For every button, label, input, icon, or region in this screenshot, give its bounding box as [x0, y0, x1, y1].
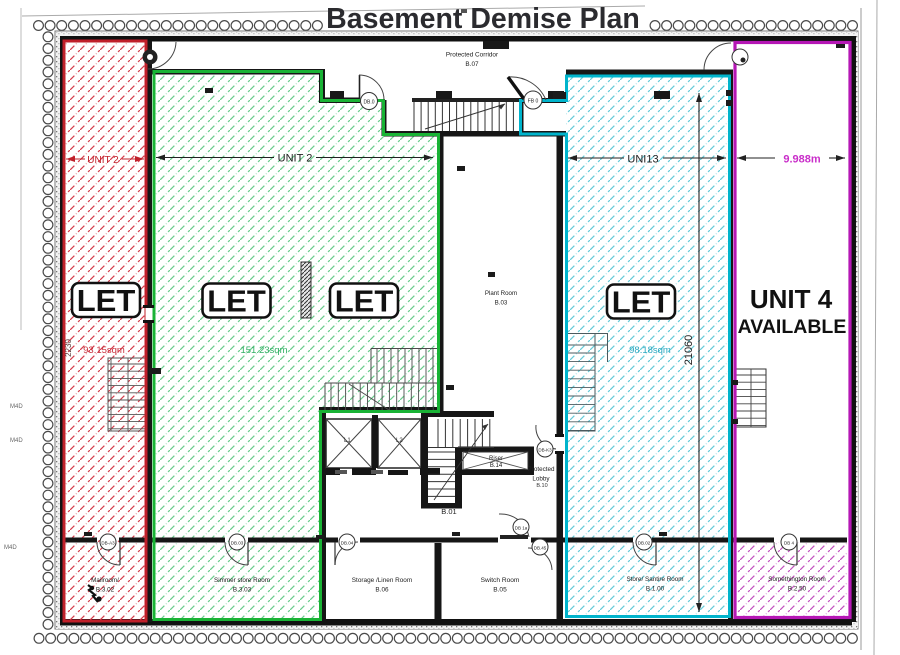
svg-text:M4D: M4D	[10, 438, 23, 444]
svg-text:M4D: M4D	[10, 404, 23, 410]
svg-text:DB.04: DB.04	[341, 541, 354, 546]
svg-text:FB 0: FB 0	[528, 99, 539, 105]
svg-text:B.01: B.01	[441, 507, 456, 516]
svg-text:Store/ Santire Room: Store/ Santire Room	[626, 576, 683, 583]
svg-text:Switch Room: Switch Room	[481, 577, 520, 584]
svg-text:B.10: B.10	[536, 483, 547, 489]
svg-text:B.03: B.03	[495, 300, 508, 307]
svg-text:UNIT 4: UNIT 4	[750, 284, 833, 314]
svg-text:DB.0: DB.0	[363, 100, 374, 106]
svg-text:Simmer store Room: Simmer store Room	[214, 577, 270, 584]
svg-text:Mailroom/: Mailroom/	[91, 577, 119, 584]
svg-text:B.05: B.05	[493, 587, 507, 594]
svg-text:Basement Demise Plan: Basement Demise Plan	[326, 3, 640, 35]
svg-text:9.988m: 9.988m	[783, 154, 821, 166]
svg-text:DB.03: DB.03	[231, 541, 244, 546]
svg-text:B.07: B.07	[465, 61, 479, 68]
svg-text:DB 1a: DB 1a	[515, 526, 528, 531]
svg-text:Protected Corridor: Protected Corridor	[446, 52, 499, 59]
svg-text:M4D: M4D	[4, 545, 17, 551]
svg-text:B.14: B.14	[490, 463, 503, 469]
svg-text:B.3.02: B.3.02	[96, 587, 115, 594]
svg-text:Riser: Riser	[489, 456, 503, 462]
svg-text:B.3.03: B.3.03	[233, 587, 252, 594]
svg-text:21060: 21060	[683, 335, 695, 366]
svg-text:93.15sqm: 93.15sqm	[83, 345, 125, 356]
svg-text:B.1.00: B.1.00	[646, 586, 665, 593]
svg-text:UNI13: UNI13	[627, 154, 658, 166]
svg-text:Protected: Protected	[528, 466, 555, 473]
svg-text:98.18sqm: 98.18sqm	[629, 345, 671, 356]
svg-text:Storage /Linen Room: Storage /Linen Room	[352, 577, 412, 584]
svg-text:DB 4: DB 4	[784, 541, 795, 546]
svg-text:2230: 2230	[64, 339, 73, 357]
svg-text:UNIT 2: UNIT 2	[278, 153, 313, 165]
svg-text:LET: LET	[207, 284, 266, 319]
svg-text:Somethington Room: Somethington Room	[768, 576, 825, 583]
svg-text:AVAILABLE: AVAILABLE	[738, 316, 847, 338]
svg-text:LET: LET	[335, 284, 394, 319]
svg-text:UNIT 2: UNIT 2	[87, 155, 119, 166]
svg-text:LET: LET	[612, 285, 671, 320]
svg-text:B.2.50: B.2.50	[788, 586, 807, 593]
svg-text:L2: L2	[396, 438, 403, 444]
svg-text:DB.02: DB.02	[638, 541, 651, 546]
svg-text:LET: LET	[77, 283, 136, 318]
svg-text:151.23sqm: 151.23sqm	[240, 345, 287, 356]
svg-text:Lobby: Lobby	[532, 476, 550, 483]
svg-text:L1: L1	[344, 438, 351, 444]
svg-text:DB-A3: DB-A3	[101, 541, 115, 546]
svg-text:DB-K3: DB-K3	[538, 448, 552, 453]
svg-text:Plant Room: Plant Room	[485, 290, 517, 297]
svg-text:DB.45: DB.45	[534, 546, 547, 551]
svg-text:B.06: B.06	[375, 587, 389, 594]
